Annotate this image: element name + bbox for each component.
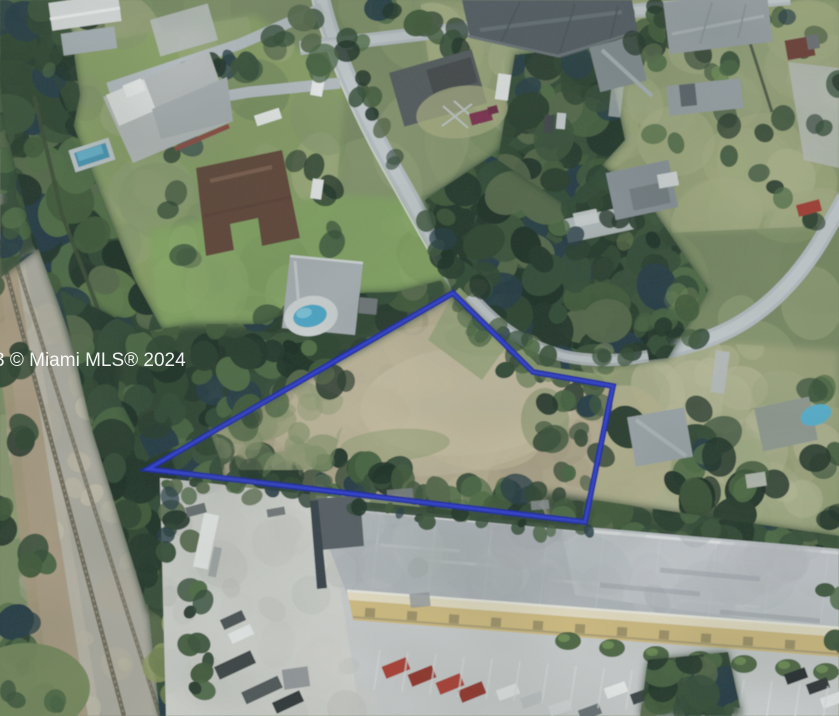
svg-text:3 © Miami MLS® 2024: 3 © Miami MLS® 2024 — [0, 350, 186, 371]
